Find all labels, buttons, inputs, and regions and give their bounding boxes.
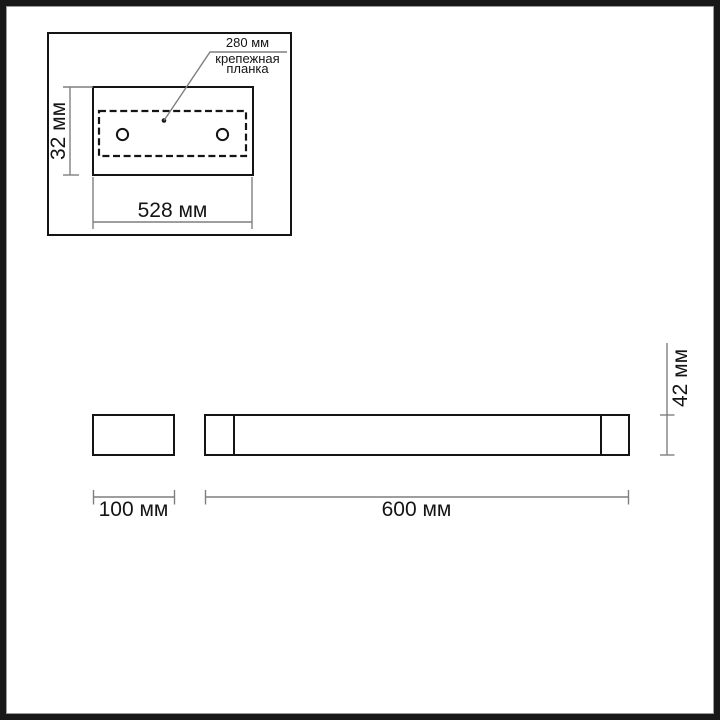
mounting-hole-left	[117, 129, 128, 140]
bracket-dashed-outline	[99, 111, 246, 156]
mounting-hole-right	[217, 129, 228, 140]
plate-height-dimension-label: 32 мм	[49, 101, 69, 161]
callout-dimension-label: 280 мм	[208, 36, 287, 49]
side-view-width-dimension-label: 100 мм	[92, 500, 175, 520]
plate-width-dimension-label: 528 мм	[112, 201, 233, 221]
front-view-width-dimension-label: 600 мм	[356, 500, 477, 520]
front-view-height-dimension-label: 42 мм	[671, 348, 691, 408]
dimension-diagram: 280 мм крепежная планка 32 мм 528 мм 100…	[0, 0, 720, 720]
diagram-linework	[0, 0, 720, 720]
callout-name-label: крепежная планка	[205, 54, 290, 73]
